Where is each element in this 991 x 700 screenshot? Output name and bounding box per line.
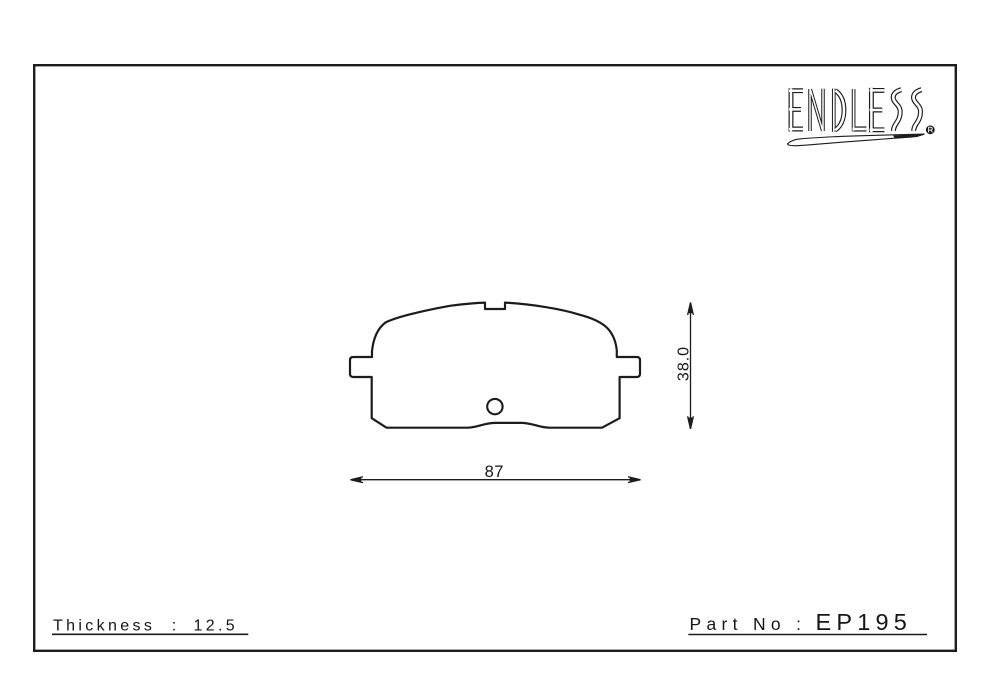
svg-text:12.5: 12.5 [194, 617, 239, 634]
svg-text:Thickness: Thickness [53, 617, 155, 634]
svg-text:Part No :: Part No : [690, 614, 807, 634]
svg-text:EP195: EP195 [816, 609, 913, 635]
svg-text:38.0: 38.0 [676, 346, 693, 381]
svg-text:87: 87 [485, 463, 504, 481]
svg-text::: : [172, 617, 176, 634]
